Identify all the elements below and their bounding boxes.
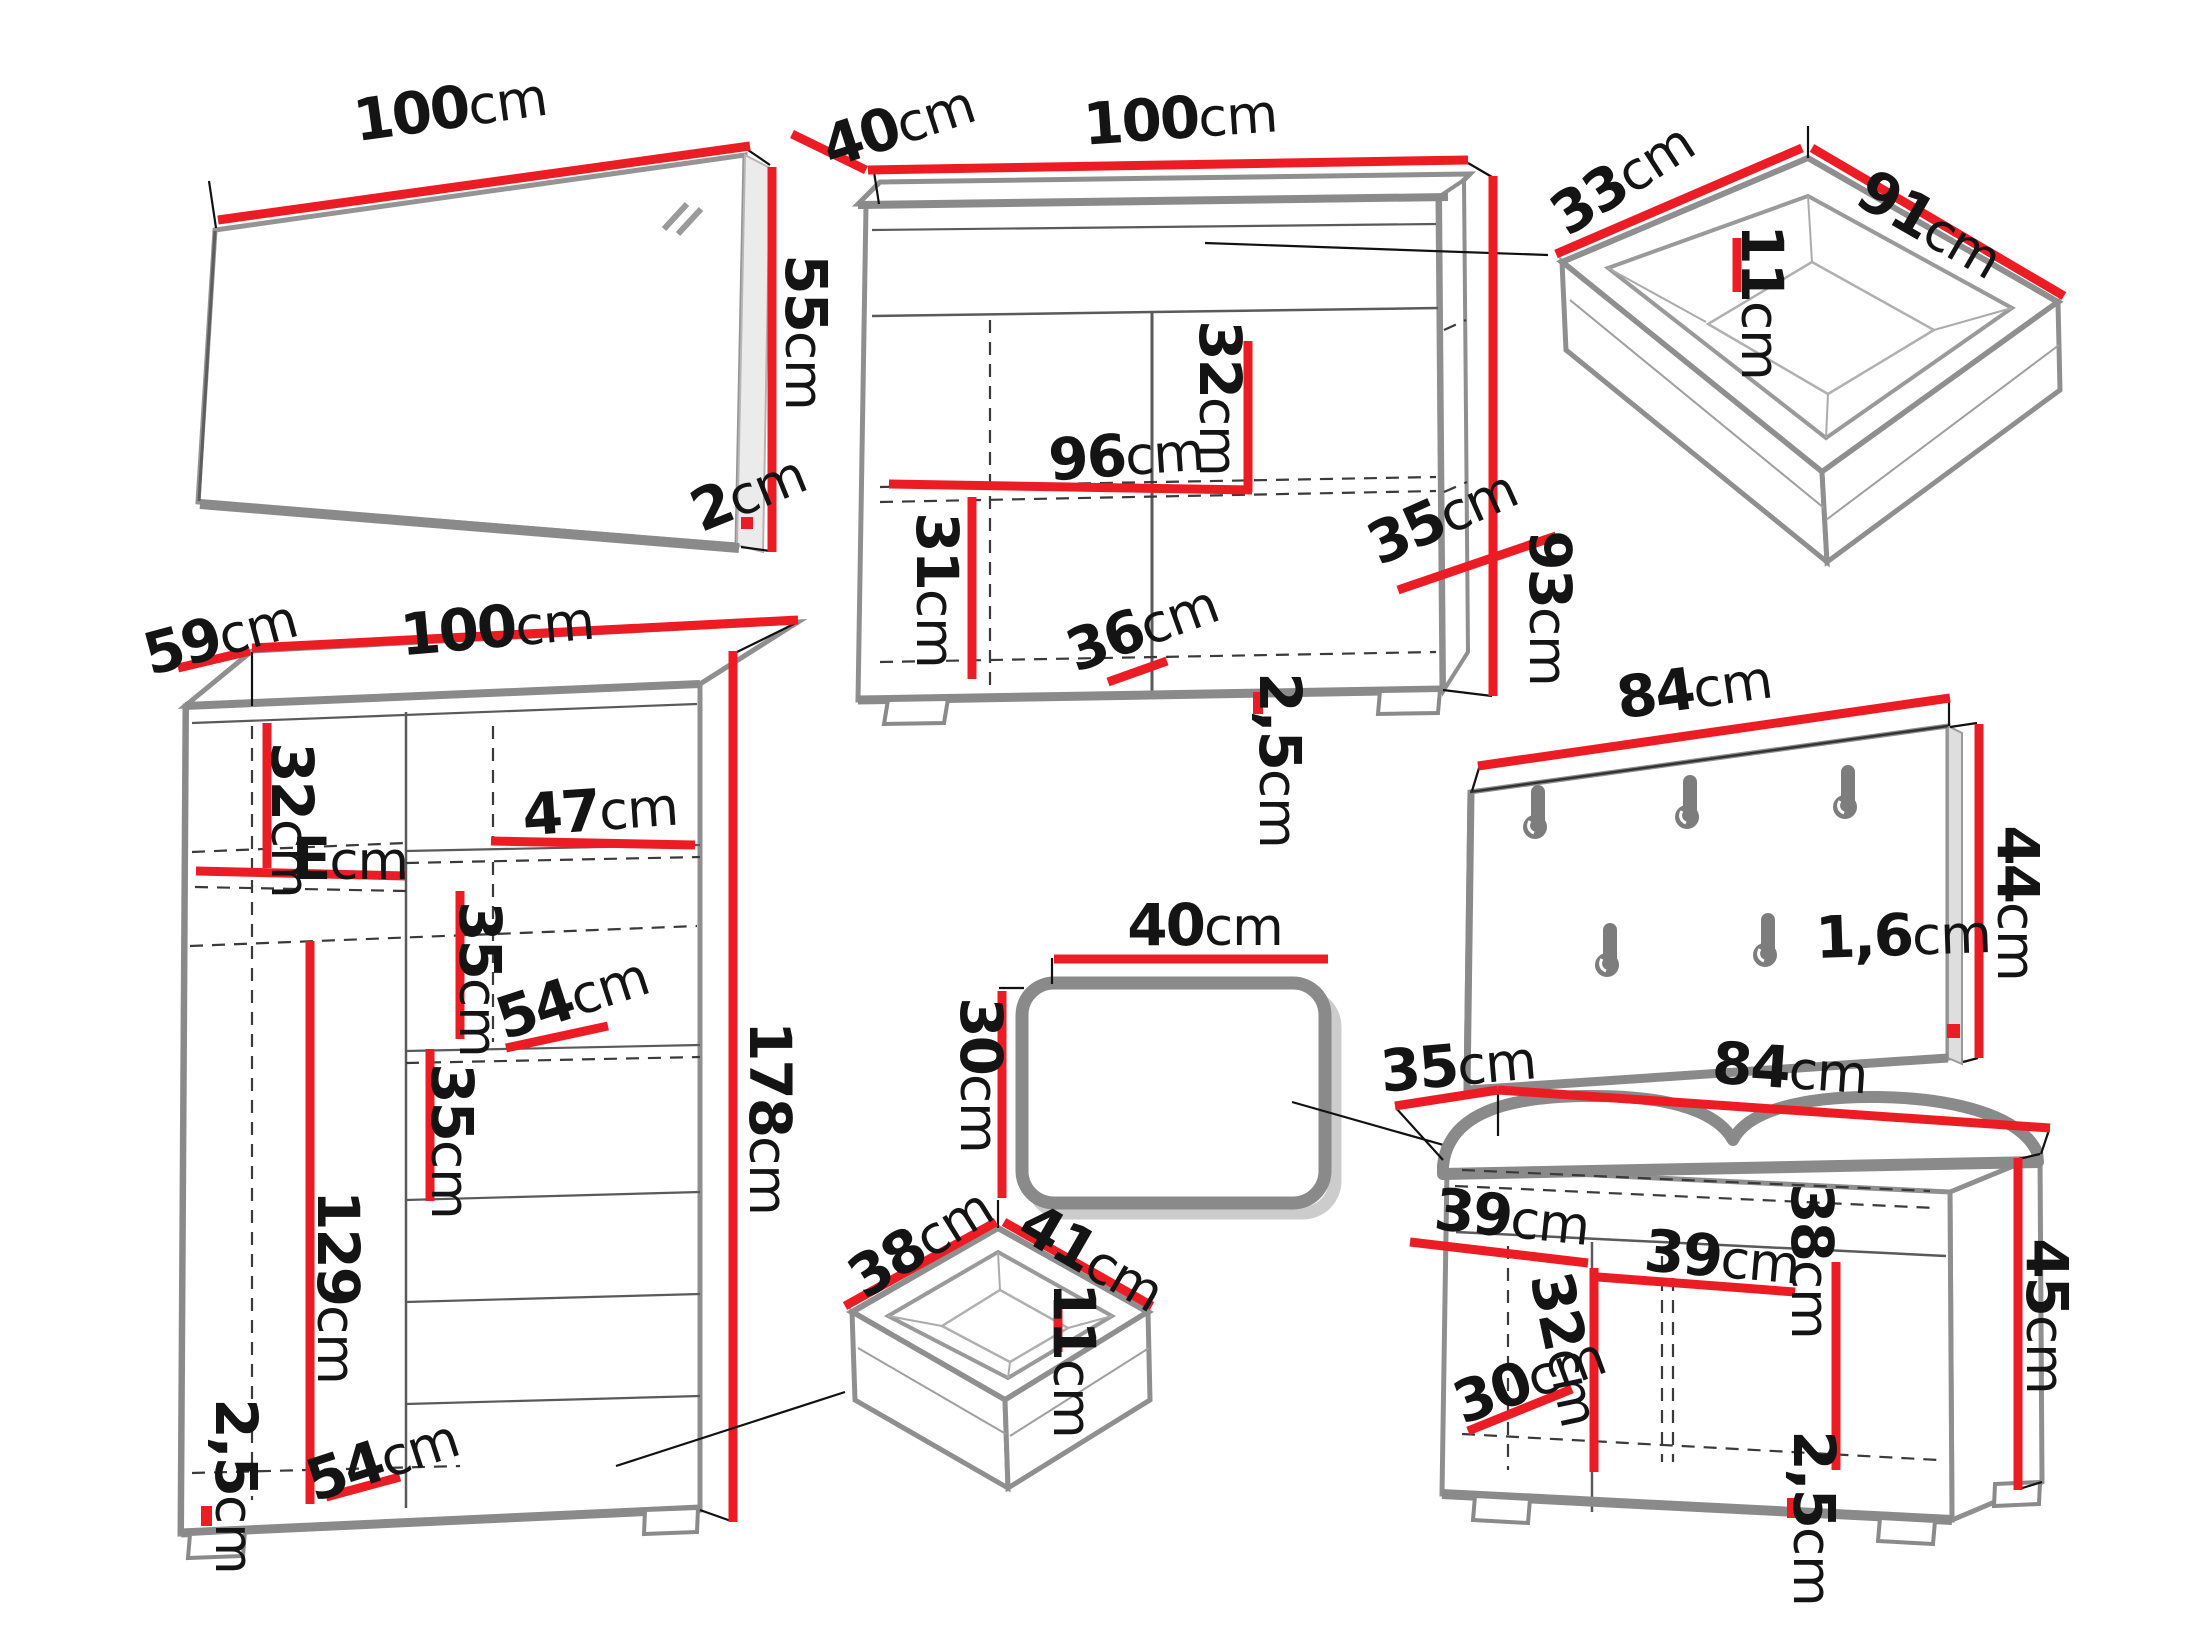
cabinet-width-label: 100cm [1081,82,1278,153]
coat-rack-thickness-label: 1,6cm [1814,903,1991,967]
furniture-dimensions-diagram: 100cm 55cm 2cm 40cm 100cm 96cm 32cm 31cm… [0,0,2200,1650]
stool-width-label: 40cm [1127,896,1283,954]
drawer-small-height-label: 11cm [1045,1282,1103,1438]
cabinet-foot [884,699,948,724]
wardrobe-shelf-width-label: 47cm [520,776,679,845]
wardrobe-section-a-label: 35cm [451,901,509,1057]
cabinet-side-face [1440,180,1468,690]
wardrobe-plinth-label: 2,5cm [207,1398,265,1574]
wardrobe-section-b-label: 35cm [423,1063,481,1219]
bench-width-label: 84cm [1710,1034,1869,1103]
wardrobe-height-label: 178cm [741,1021,799,1215]
wardrobe-foot [644,1508,698,1534]
bench-plinth-label: 2,5cm [1785,1430,1843,1606]
wardrobe-door-height-label: 129cm [309,1190,367,1384]
coat-rack-thickness-mark [1947,1024,1960,1038]
wardrobe-width-label: 100cm [398,590,596,665]
coat-rack-edge [1948,726,1962,1064]
wardrobe-shelf-depth-label: Ecm [292,830,408,888]
bench-inner-height-label: 38cm [1783,1183,1841,1339]
cabinet-foot [1378,690,1440,714]
mirror-height-label: 55cm [777,254,835,410]
stool-height-label: 30cm [952,997,1010,1153]
bench-drawing [1395,1090,2050,1544]
cabinet-shelf-top-label: 32cm [1191,320,1249,476]
coat-rack-height-label: 44cm [1989,825,2047,981]
cabinet-shelf-bottom-label: 31cm [908,512,966,668]
stool-seat [1022,983,1325,1203]
cabinet-height-label: 93cm [1521,530,1579,686]
bench-depth-label: 35cm [1378,1029,1538,1100]
bench-foot [1878,1518,1935,1544]
bench-height-label: 45cm [2018,1238,2076,1394]
drawer-large-height-label: 11cm [1733,224,1791,380]
cabinet-inner-width-label: 96cm [1046,421,1205,490]
bench-foot [1473,1496,1530,1523]
cabinet-plinth-label: 2,5cm [1251,672,1309,848]
